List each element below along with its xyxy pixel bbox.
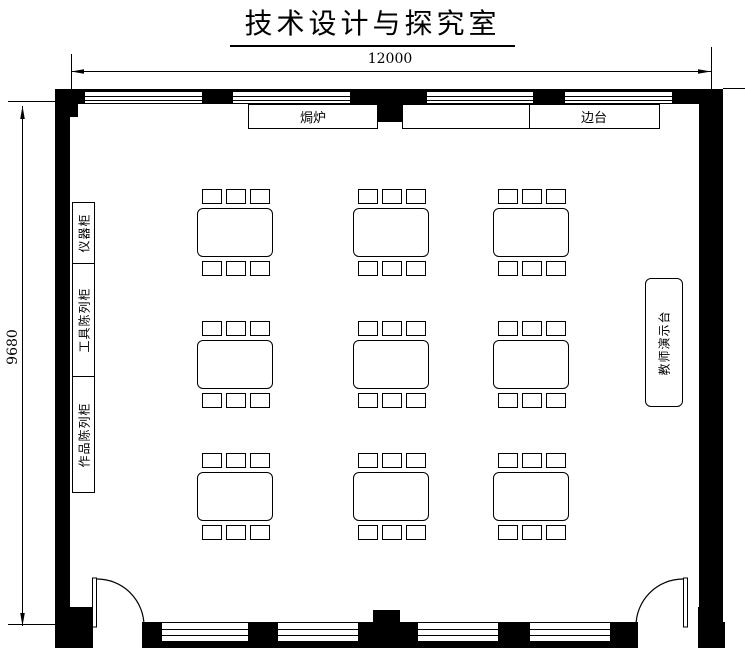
extension-line — [8, 101, 55, 102]
side-counter-label: 边台 — [581, 107, 607, 126]
wall-segment — [202, 89, 233, 104]
wall-segment — [142, 622, 162, 648]
wall-segment — [248, 622, 278, 648]
wall-segment — [55, 104, 78, 117]
extension-line — [8, 624, 55, 625]
worktable — [493, 340, 569, 389]
width-dimension-label: 12000 — [354, 51, 426, 67]
stool — [406, 453, 426, 468]
height-dimension-label: 9680 — [5, 329, 21, 365]
stool — [546, 453, 566, 468]
window — [233, 89, 350, 104]
plan-title-text: 技术设计与探究室 — [230, 2, 514, 47]
stool — [406, 525, 426, 540]
works-display-cabinet-label: 作品陈列柜 — [75, 402, 92, 467]
worktable — [493, 472, 569, 521]
cabinet-strip: 仪器柜 工具陈列柜 作品陈列柜 — [72, 202, 95, 493]
teacher-demo-station: 教师演示台 — [645, 278, 683, 407]
door-leaf-left — [93, 578, 97, 627]
wall-segment — [698, 607, 717, 622]
wall-segment — [55, 89, 70, 648]
stool — [382, 189, 402, 204]
wall-segment — [533, 89, 565, 104]
instrument-cabinet: 仪器柜 — [73, 203, 94, 263]
wall-segment — [498, 622, 530, 648]
tool-display-cabinet: 工具陈列柜 — [73, 263, 94, 376]
stool — [522, 189, 542, 204]
dimension-line-vertical — [22, 106, 23, 626]
stool — [498, 525, 518, 540]
wall-segment — [70, 607, 93, 622]
stool — [522, 321, 542, 336]
stool — [522, 393, 542, 408]
wall-segment — [373, 610, 400, 622]
stool — [382, 393, 402, 408]
stool — [226, 525, 246, 540]
stool — [358, 321, 378, 336]
oven-label: 焗炉 — [300, 107, 326, 126]
window — [418, 622, 498, 648]
door-leaf-right — [684, 578, 688, 627]
stool — [546, 189, 566, 204]
stool — [498, 453, 518, 468]
stool — [382, 261, 402, 276]
plan-title: 技术设计与探究室 — [0, 2, 745, 47]
window — [427, 89, 533, 104]
oven-counter: 焗炉 — [248, 104, 378, 129]
dimension-line-horizontal — [71, 71, 711, 72]
worktable — [353, 472, 429, 521]
stool — [358, 261, 378, 276]
stool — [406, 393, 426, 408]
stool — [226, 321, 246, 336]
stool — [382, 321, 402, 336]
window — [85, 89, 202, 104]
stool — [226, 393, 246, 408]
window — [162, 622, 248, 648]
door-swing-arc-right — [636, 579, 683, 626]
instrument-cabinet-label: 仪器柜 — [75, 213, 92, 252]
stool — [382, 525, 402, 540]
window — [565, 89, 672, 104]
teacher-demo-station-label: 教师演示台 — [656, 310, 673, 375]
stool — [498, 189, 518, 204]
stool — [202, 189, 222, 204]
stool — [250, 189, 270, 204]
stool — [406, 189, 426, 204]
stool — [406, 321, 426, 336]
stool — [250, 393, 270, 408]
stool — [250, 453, 270, 468]
stool — [202, 321, 222, 336]
stool — [250, 321, 270, 336]
wall-edge-line — [723, 88, 745, 89]
tool-display-cabinet-label: 工具陈列柜 — [75, 287, 92, 352]
worktable — [197, 472, 273, 521]
wall-segment — [698, 622, 725, 648]
stool — [546, 261, 566, 276]
stool — [498, 393, 518, 408]
door-swing-arc-left — [97, 579, 144, 626]
worktable — [353, 208, 429, 257]
worktable — [197, 208, 273, 257]
wall-segment — [377, 104, 402, 122]
stool — [498, 261, 518, 276]
stool — [202, 261, 222, 276]
wall-segment — [610, 622, 638, 648]
stool — [546, 393, 566, 408]
stool — [382, 453, 402, 468]
worktable — [493, 208, 569, 257]
stool — [522, 525, 542, 540]
stool — [202, 393, 222, 408]
floor-plan: 技术设计与探究室 12000 9680 焗炉 边台 仪器柜 工具陈列柜 作品陈列… — [0, 0, 745, 648]
worktable — [353, 340, 429, 389]
wall-segment — [350, 89, 427, 104]
side-counter: 边台 — [402, 104, 660, 129]
wall-segment — [55, 622, 93, 648]
window — [530, 622, 610, 648]
stool — [358, 453, 378, 468]
stool — [250, 261, 270, 276]
stool — [358, 189, 378, 204]
stool — [522, 261, 542, 276]
stool — [226, 261, 246, 276]
stool — [202, 453, 222, 468]
stool — [358, 393, 378, 408]
window — [278, 622, 358, 648]
works-display-cabinet: 作品陈列柜 — [73, 376, 94, 492]
stool — [406, 261, 426, 276]
stool — [498, 321, 518, 336]
stool — [546, 321, 566, 336]
wall-segment — [358, 622, 418, 648]
stool — [546, 525, 566, 540]
stool — [202, 525, 222, 540]
stool — [226, 189, 246, 204]
wall-segment — [699, 89, 723, 648]
stool — [358, 525, 378, 540]
stool — [522, 453, 542, 468]
side-counter-cell: 边台 — [529, 105, 659, 128]
worktable — [197, 340, 273, 389]
stool — [226, 453, 246, 468]
stool — [250, 525, 270, 540]
extension-line — [711, 47, 712, 89]
